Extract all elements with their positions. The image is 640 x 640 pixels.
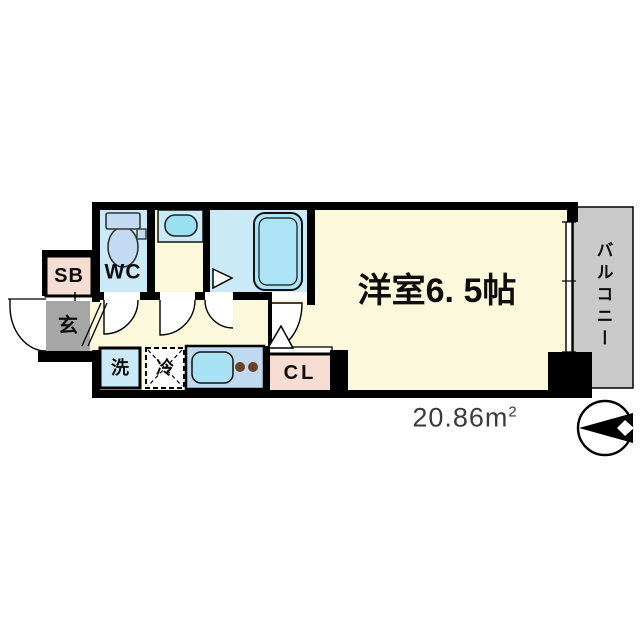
kitchen-counter <box>186 346 264 389</box>
wc-label: WC <box>105 262 142 283</box>
floorplan-drawing <box>0 0 640 640</box>
refrigerator-label: 冷 <box>156 359 174 377</box>
balcony-label: バルコニー <box>595 241 612 351</box>
shoe-box-label: SB <box>54 266 84 286</box>
floor-area-label: 20.86m2 <box>412 405 517 432</box>
floor-area-sup: 2 <box>508 405 517 421</box>
washbasin-icon <box>158 210 203 242</box>
washer-label: 洗 <box>111 359 129 377</box>
closet-label: CL <box>284 363 317 383</box>
entrance-passage-floor <box>90 302 102 350</box>
bathtub-icon <box>254 213 302 290</box>
compass-icon <box>578 401 634 455</box>
main-room-label: 洋室6. 5帖 <box>358 274 517 308</box>
entrance-label: 玄 <box>58 316 78 336</box>
floor-area-value: 20.86m <box>412 403 508 433</box>
floorplan-canvas: WC SB 玄 洗 冷 CL 洋室6. 5帖 バルコニー 20.86m2 <box>0 0 640 640</box>
sink-icon <box>192 352 233 383</box>
